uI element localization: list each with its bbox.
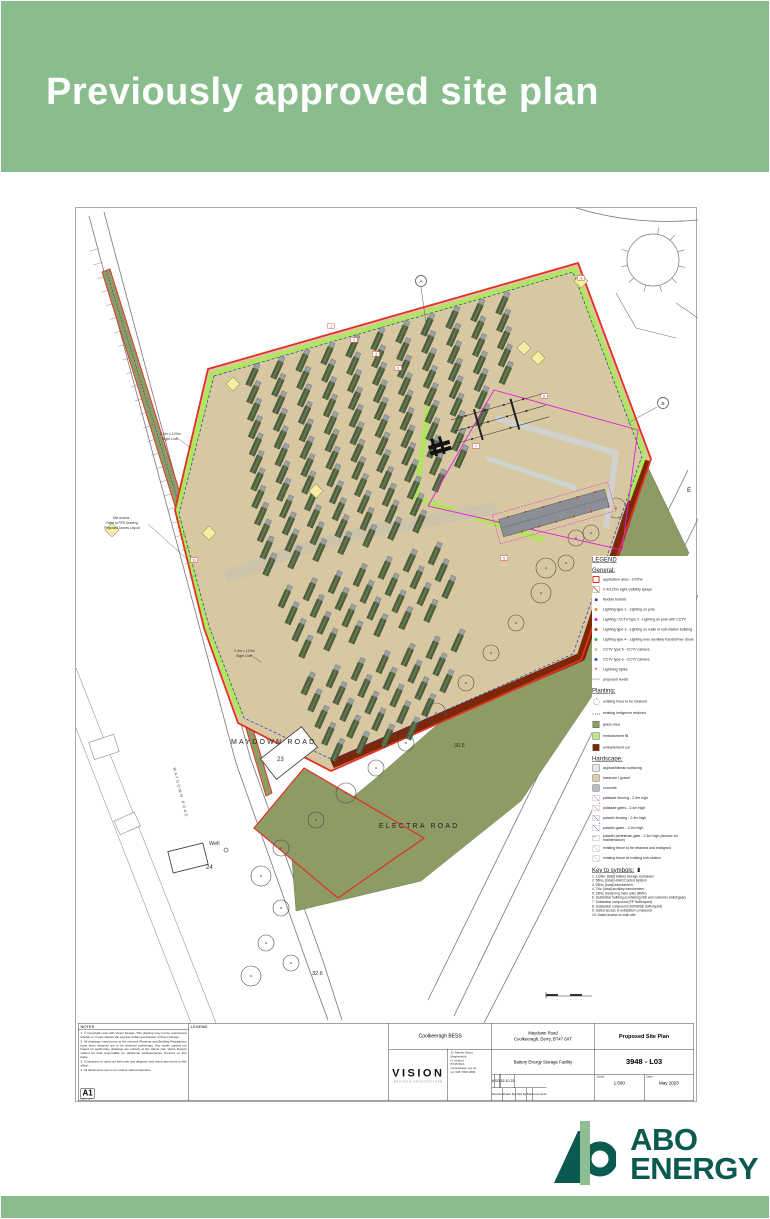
legend-item: embankment cut [592, 744, 696, 752]
key-badge: 10 [190, 558, 197, 563]
legend-item-label: paladin fencing - 2.4m high [603, 816, 646, 820]
legend-item: Lighting type 4 - Lighting over auxiliar… [592, 636, 696, 644]
legend-heading-key: Key to symbols:▮ [592, 866, 696, 873]
legend-item: application area - 3.47ha [592, 576, 696, 584]
footer-band [1, 1196, 769, 1218]
svg-text:10: 10 [192, 558, 196, 562]
legend-hardscape-list: asphalt/bitmac surfacing hardcore / grav… [592, 764, 696, 862]
drawing-number: 3948 - L03 [595, 1050, 694, 1075]
sight-line-note-1a: 2.4m x 120m [160, 432, 181, 436]
key-badge: 8 [540, 394, 547, 399]
revision-label-cell: Chkd By [516, 1088, 527, 1101]
legend-item-label: application area - 3.47ha [603, 577, 643, 581]
legend-item: existing trees to be retained [592, 698, 696, 706]
revision-label-cell: Comments [533, 1088, 547, 1101]
revision-label-cell: Drawn By [503, 1088, 516, 1101]
legend-swatch-icon [592, 721, 600, 729]
legend-planting-list: existing trees to be retained existing h… [592, 698, 696, 752]
legend-swatch-icon [592, 854, 600, 862]
site-access-note-3: 'Proposed Access Layout' [104, 526, 141, 530]
title-block: Coolkeeragh BESS VISION DESIGN & ARCHITE… [389, 1023, 694, 1101]
facility-name: Battery Energy Storage Facility [492, 1050, 594, 1075]
legend-swatch-icon [592, 646, 600, 654]
brand-wordmark: ABO ENERGY [630, 1125, 758, 1184]
notes-list: 1. © Copyright rests with Vision Design.… [81, 1032, 187, 1073]
legend-swatch-icon [592, 764, 600, 772]
spot-level-30-5: 30.5 [454, 743, 465, 749]
label-maydown-road: MAYDOWN ROAD [231, 739, 316, 746]
key-badge: 9 [500, 556, 507, 561]
well-marker [224, 848, 228, 852]
legend-item-label: paladin gates - 2.4m high [603, 826, 643, 830]
legend-swatch-icon [592, 709, 600, 717]
svg-text:3: 3 [375, 352, 377, 356]
legend-box-heading: LEGEND [189, 1025, 389, 1030]
date-cell: Date May 2023 [644, 1075, 693, 1101]
legend-swatch-icon [592, 814, 600, 822]
legend-swatch-icon [592, 626, 600, 634]
legend-item-label: proposed levels [603, 677, 628, 681]
svg-text:4: 4 [580, 276, 582, 280]
legend-swatch-icon [592, 616, 600, 624]
legend-panel: LEGEND General: application area - 3.47h… [592, 556, 696, 1021]
legend-title: LEGEND [592, 556, 696, 563]
site-access-note-2: Refer to RPS Drawing [106, 521, 138, 525]
legend-item: existing fence at existing sub-station [592, 854, 696, 862]
legend-swatch-icon [592, 732, 600, 740]
svg-text:8: 8 [543, 394, 545, 398]
legend-heading-planting: Planting: [592, 687, 696, 694]
revision-label-cell: Revision [492, 1088, 503, 1101]
sight-line-note-2a: 2.4m x 120m [234, 649, 255, 653]
label-well: Well [209, 841, 220, 847]
paper-size-caption: paper size [81, 1098, 93, 1101]
svg-text:7: 7 [475, 444, 477, 448]
label-building-24: 24 [206, 865, 213, 871]
legend-swatch-icon [592, 744, 600, 752]
legend-item: palisade fencing - 2.4m high [592, 794, 696, 802]
legend-item: paladin fencing - 2.4m high [592, 814, 696, 822]
svg-text:1: 1 [330, 324, 332, 328]
legend-swatch-icon [592, 804, 600, 812]
legend-swatch-icon [592, 576, 600, 584]
legend-item: paladin gates - 2.4m high [592, 824, 696, 832]
legend-swatch-icon: ✶ [592, 666, 600, 674]
legend-item-label: grass area [603, 722, 620, 726]
svg-text:9: 9 [503, 556, 505, 560]
note-item: 3. Contractors to carry out their own du… [81, 1060, 187, 1068]
legend-item: Lighting type 3 - Lighting on walls of s… [592, 626, 696, 634]
legend-item-label: asphalt/bitmac surfacing [603, 766, 642, 770]
label-building-23: 23 [277, 757, 284, 763]
legend-item: concrete [592, 784, 696, 792]
legend-item: flexible bollard [592, 596, 696, 604]
label-electra-road: ELECTRA ROAD [379, 823, 459, 830]
slide: Previously approved site plan [0, 0, 770, 1219]
key-symbol-item: 10. Gated access to main site [592, 913, 696, 917]
legend-item-label: Lightning Spike [603, 667, 628, 671]
legend-swatch-icon [592, 656, 600, 664]
legend-item: ✶ Lightning Spike [592, 666, 696, 674]
legend-item-label: embankment cut [603, 745, 630, 749]
legend-item-label: palisade gates - 2.4m high [603, 806, 645, 810]
notes-box: NOTES 1. © Copyright rests with Vision D… [78, 1023, 189, 1101]
legend-swatch-icon [592, 834, 600, 842]
legend-item: 2.4x120m sight visibility splays [592, 586, 696, 594]
key-badge: 5 [394, 366, 401, 371]
legend-swatch-icon [592, 774, 600, 782]
legend-swatch-icon [592, 606, 600, 614]
legend-general-list: application area - 3.47ha 2.4x120m sight… [592, 576, 696, 684]
spot-level-32-6: 32.6 [312, 971, 323, 977]
legend-swatch-icon [592, 844, 600, 852]
legend-item: embankment fill [592, 732, 696, 740]
legend-item-label: hardcore / gravel [603, 776, 630, 780]
legend-item-label: existing hedgerow retained [603, 711, 646, 715]
legend-item-label: existing fence to be retained and realig… [603, 846, 671, 850]
legend-item: palisade gates - 2.4m high [592, 804, 696, 812]
legend-item-label: CCTV type 5 - CCTV camera [603, 647, 650, 651]
legend-item: (x.xx) proposed levels [592, 676, 696, 684]
legend-box: LEGEND [189, 1023, 389, 1101]
key-badge: 7 [472, 444, 479, 449]
legend-key-list: 1. 112No. [total] battery storage contai… [592, 875, 696, 918]
legend-heading-hardscape: Hardscape: [592, 755, 696, 762]
page-title: Previously approved site plan [1, 1, 769, 114]
key-marker: ▮ [637, 867, 640, 873]
legend-swatch-icon [592, 596, 600, 604]
site-address: Maydown Road Coolkeeragh, Derry, BT47 6X… [492, 1024, 594, 1050]
note-item: 2. All drawings issued prior to the rele… [81, 1040, 187, 1059]
sight-line-note-2b: Sight Line [236, 654, 252, 658]
revision-value-cell: 02.10.23 [501, 1075, 515, 1088]
legend-swatch-icon [592, 784, 600, 792]
revision-table: ASO02.10.23 RevisionDrawn ByChkd ByDateC… [492, 1075, 594, 1101]
svg-text:2: 2 [353, 338, 355, 342]
firm-address: 31 Rainey StreetMagherafeltN. IrelandBT4… [448, 1050, 491, 1101]
key-badge: 4 [577, 276, 584, 281]
site-plan-sheet: 12345678910 [75, 207, 697, 1102]
label-electra-e: E [687, 487, 692, 494]
legend-swatch-icon [592, 824, 600, 832]
legend-item: CCTV type 5 - CCTV camera [592, 646, 696, 654]
legend-swatch-icon [592, 636, 600, 644]
note-item: 1. © Copyright rests with Vision Design.… [81, 1032, 187, 1040]
legend-item: asphalt/bitmac surfacing [592, 764, 696, 772]
legend-item-label: embankment fill [603, 734, 628, 738]
vision-logo: VISION DESIGN & ARCHITECTURE [389, 1050, 448, 1101]
drawing-title: Proposed Site Plan [595, 1024, 694, 1050]
key-badge: 1 [327, 324, 334, 329]
key-badge: 3 [372, 352, 379, 357]
legend-item-label: Lighting type 4 - Lighting over auxiliar… [603, 637, 694, 641]
legend-item-label: 2.4x120m sight visibility splays [603, 587, 652, 591]
legend-item-label: Lighting / CCTV type 2 - Lighting on pol… [603, 617, 686, 621]
legend-item: grass area [592, 721, 696, 729]
sight-line-note-1b: Sight Line [162, 437, 178, 441]
legend-item: CCTV type 6 - CCTV camera [592, 656, 696, 664]
notes-heading: NOTES [79, 1025, 189, 1031]
legend-item: existing hedgerow retained [592, 709, 696, 717]
sheet-bottom-strip: NOTES 1. © Copyright rests with Vision D… [78, 1023, 694, 1101]
site-access-note-1: Site Access - [113, 516, 131, 520]
legend-item-label: palisade fencing - 2.4m high [603, 796, 648, 800]
abo-energy-logo: ABO ENERGY [552, 1121, 758, 1187]
legend-item: existing fence to be retained and realig… [592, 844, 696, 852]
key-badge: 2 [350, 338, 357, 343]
legend-item-label: existing trees to be retained [603, 699, 647, 703]
legend-item: Lighting / CCTV type 2 - Lighting on pol… [592, 616, 696, 624]
label-maydown-road-vertical: MAYDOWN ROAD [172, 767, 189, 818]
header-band: Previously approved site plan [1, 1, 769, 172]
legend-item: paladin pedestrian gate - 2.4m high (acc… [592, 834, 696, 842]
project-name: Coolkeeragh BESS [389, 1024, 491, 1050]
legend-heading-general: General: [592, 567, 696, 574]
legend-item-label: existing fence at existing sub-station [603, 856, 661, 860]
legend-item-label: Lighting type 3 - Lighting on walls of s… [603, 627, 692, 631]
legend-item-label: paladin pedestrian gate - 2.4m high (acc… [603, 834, 696, 842]
legend-item-label: flexible bollard [603, 597, 626, 601]
legend-item-label: Lighting type 1 - Lighting on pole [603, 607, 655, 611]
note-item: 4. All dimensions are in mm unless state… [81, 1069, 187, 1073]
legend-swatch-icon: (x.xx) [592, 676, 600, 684]
legend-item-label: CCTV type 6 - CCTV camera [603, 657, 650, 661]
address-line: tel: 028 7930 0866 [451, 1071, 489, 1075]
callout-b: B [661, 401, 664, 407]
legend-item: hardcore / gravel [592, 774, 696, 782]
svg-text:5: 5 [397, 366, 399, 370]
legend-swatch-icon [592, 794, 600, 802]
legend-swatch-icon [592, 698, 600, 706]
culdesac-plots [621, 228, 685, 292]
legend-item: Lighting type 1 - Lighting on pole [592, 606, 696, 614]
legend-item-label: concrete [603, 786, 617, 790]
scale-cell: Scale 1:500 [595, 1075, 645, 1101]
abo-monogram-icon [552, 1121, 616, 1187]
legend-swatch-icon [592, 586, 600, 594]
